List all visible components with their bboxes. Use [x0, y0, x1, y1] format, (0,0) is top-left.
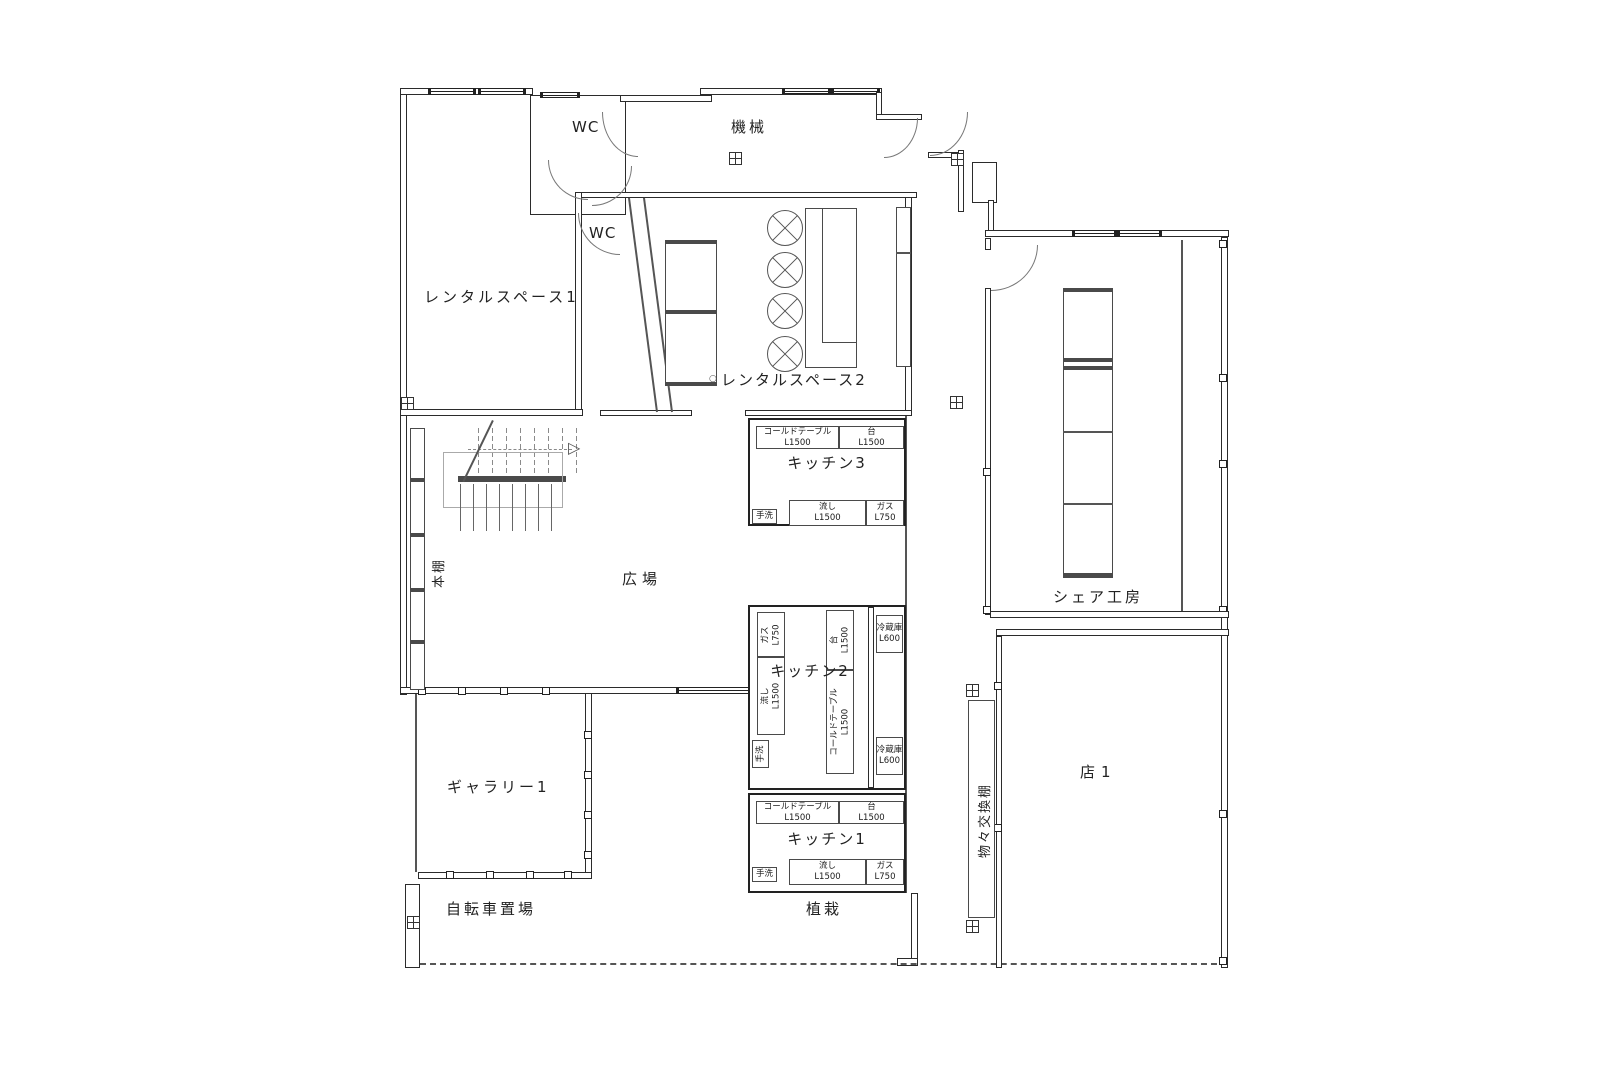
grid-marker-icon — [729, 152, 742, 165]
wc-upper-label: WC — [572, 118, 599, 136]
rental-space-1-label: レンタルスペース1 — [424, 286, 579, 307]
share-workshop-label: シェア工房 — [1053, 586, 1143, 607]
wall-rental2-bottom-b — [745, 410, 912, 416]
window — [478, 88, 526, 95]
grid-marker-icon — [407, 916, 420, 929]
post — [564, 871, 572, 879]
grid-marker-icon — [401, 397, 414, 410]
kitchen2-fridge-top: 冷蔵庫L600 — [876, 615, 903, 653]
grid-marker-icon — [951, 153, 964, 166]
post — [542, 687, 550, 695]
shop-1-label: 店1 — [1080, 761, 1117, 782]
wc-lower-label: WC — [589, 224, 616, 242]
post — [446, 871, 454, 879]
wall-gallery-left — [415, 694, 417, 872]
stairs-direction-arrow-icon: ▷ — [568, 440, 580, 456]
wall-workshop-bottom — [990, 611, 1229, 618]
table-divider — [1063, 503, 1113, 505]
workshop-table — [1063, 288, 1113, 578]
grid-marker-icon — [966, 684, 979, 697]
grid-marker-icon — [966, 920, 979, 933]
wall-west — [400, 88, 407, 695]
post — [1219, 374, 1227, 382]
kitchen1-cold-table: コールドテーブルL1500 — [756, 801, 839, 824]
bookshelf-divider — [410, 533, 425, 537]
kitchen3-gas: ガスL750 — [866, 500, 904, 526]
kitchen2-gas: ガスL750 — [757, 612, 785, 657]
post — [486, 871, 494, 879]
floor-plan: ▷ 本棚 コールドテーブルL1500 台L1500 キッチン3 手洗 流しL15… — [0, 0, 1600, 1073]
stairs-center-line — [468, 449, 572, 450]
wall-wing-left — [985, 288, 991, 615]
window — [540, 92, 580, 98]
kitchen2-fridge-bottom: 冷蔵庫L600 — [876, 737, 903, 775]
post — [526, 871, 534, 879]
window — [1117, 230, 1162, 237]
chair — [767, 336, 803, 372]
window — [1072, 230, 1117, 237]
table-cap — [665, 240, 717, 244]
kitchen1-gas: ガスL750 — [866, 859, 904, 885]
post — [584, 771, 592, 779]
table-cap — [1063, 573, 1113, 577]
kitchen3-sink: 流しL1500 — [789, 500, 866, 526]
bicycle-parking-label: 自転車置場 — [446, 898, 536, 919]
rental2-side-counter — [896, 207, 911, 367]
post — [500, 687, 508, 695]
wall-shop-top — [996, 629, 1229, 636]
property-line — [420, 963, 1227, 965]
post — [1219, 957, 1227, 965]
rental-space-2-label: レンタルスペース2 — [721, 369, 867, 390]
kitchen1-sink: 流しL1500 — [789, 859, 866, 885]
chair — [767, 210, 803, 246]
plaza-label: 広場 — [622, 568, 662, 589]
side-counter-divider — [896, 252, 911, 254]
door-arc — [884, 118, 918, 158]
bookshelf-unit — [410, 428, 425, 690]
grid-marker-icon — [950, 396, 963, 409]
wall-top-mid — [620, 95, 712, 102]
kitchen2-cold-table: コールドテーブルL1500 — [826, 670, 854, 774]
post — [994, 824, 1002, 832]
wall-planting-v — [911, 893, 918, 963]
wall-rental2-bottom-a — [600, 410, 692, 416]
planting-label: 植栽 — [806, 898, 842, 919]
machinery-label: 機械 — [731, 116, 767, 137]
kitchen2-right-wall — [868, 607, 874, 788]
wall-wing-right — [1221, 237, 1228, 968]
window — [428, 88, 476, 95]
wall-rental1-bottom — [400, 409, 583, 416]
barter-shelf-label: 物々交換棚 — [974, 783, 993, 858]
post — [1219, 460, 1227, 468]
chair — [767, 293, 803, 329]
kitchen3-handwash: 手洗 — [752, 509, 777, 524]
bookshelf-divider — [410, 588, 425, 592]
rental-space-2-marker-icon: ○ — [709, 375, 717, 384]
kitchen2-handwash: 手洗 — [752, 740, 769, 768]
kitchen1-handwash: 手洗 — [752, 867, 777, 882]
post — [1219, 240, 1227, 248]
chair — [767, 252, 803, 288]
table-cap — [1063, 366, 1113, 370]
table-cap — [665, 310, 717, 314]
stairs-lower-flight — [460, 484, 563, 531]
workshop-inner-line — [1181, 240, 1183, 614]
wall-conn-v2 — [988, 200, 994, 234]
post — [458, 687, 466, 695]
kitchen2-title: キッチン2 — [748, 660, 872, 681]
window — [782, 88, 831, 94]
wc-lower-wall-1 — [628, 198, 657, 412]
door-arc — [592, 166, 632, 206]
bookshelf-label: 本棚 — [428, 558, 447, 588]
bookshelf-divider — [410, 640, 425, 644]
table-cap — [1063, 288, 1113, 292]
kitchen3-cold-table: コールドテーブルL1500 — [756, 426, 839, 449]
post — [584, 811, 592, 819]
rental2-counter-inner — [822, 209, 856, 343]
wall-rental-top — [575, 192, 917, 198]
kitchen1-title: キッチン1 — [748, 828, 906, 849]
post — [584, 851, 592, 859]
connector-room — [972, 162, 997, 203]
post — [1219, 810, 1227, 818]
bookshelf-divider — [410, 478, 425, 482]
window — [676, 687, 758, 694]
kitchen3-counter: 台L1500 — [839, 426, 904, 449]
door-arc — [991, 245, 1038, 291]
table-divider — [1063, 431, 1113, 433]
post — [983, 468, 991, 476]
kitchen3-title: キッチン3 — [748, 452, 906, 473]
gallery-1-label: ギャラリー1 — [447, 776, 550, 797]
table-cap — [1063, 358, 1113, 362]
window — [831, 88, 880, 94]
kitchen1-counter: 台L1500 — [839, 801, 904, 824]
post — [584, 731, 592, 739]
post — [994, 682, 1002, 690]
